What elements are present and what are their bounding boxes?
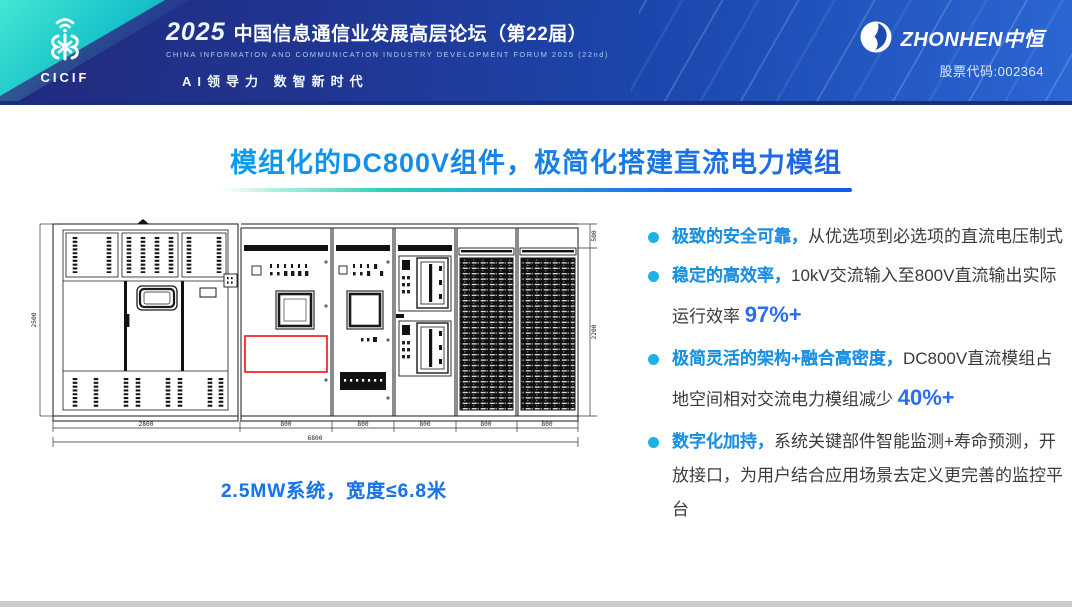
- dim-label-unit-width: 800: [541, 421, 552, 428]
- bullet-item-architecture: 极简灵活的架构+融合高密度，DC800V直流模组占地空间相对交流电力模组减少 4…: [648, 342, 1066, 420]
- vent-slots-bottom: [75, 378, 221, 408]
- stock-code: 股票代码:002364: [859, 61, 1044, 80]
- bullet-lead: 稳定的高效率，: [672, 266, 791, 285]
- forum-title: 中国信息通信业发展高层论坛（第22届）: [234, 19, 588, 46]
- page-title: 模组化的DC800V组件，极简化搭建直流电力模组: [0, 141, 1072, 180]
- dim-label-unit-width: 800: [480, 421, 491, 428]
- cicif-acronym: CICIF: [26, 70, 104, 85]
- dim-label-left-height: 2500: [31, 312, 38, 327]
- vent-slots-top: [75, 237, 219, 273]
- dim-label-unit-width: 800: [280, 421, 291, 428]
- company-name-cn: 中恒: [1003, 29, 1044, 51]
- company-block: ZHONHEN中恒 股票代码:002364: [859, 20, 1044, 80]
- dim-label-main-width: 2800: [139, 421, 154, 428]
- bullet-content: 数字化加持，系统关键部件智能监测+寿命预测，开放接口，为用户结合应用场景去定义更…: [672, 425, 1066, 527]
- rectifier-cabinet-2: [333, 228, 393, 416]
- power-module-cabinet-1: [457, 228, 516, 416]
- breaker-cabinet: [395, 228, 455, 416]
- main-cabinet: [53, 219, 238, 416]
- bullet-content: 稳定的高效率，10kV交流输入至800V直流输出实际运行效率 97%+: [672, 259, 1066, 337]
- dim-label-unit-width: 800: [357, 421, 368, 428]
- forum-tagline: AI领导力 数智新时代: [182, 71, 609, 90]
- rectifier-cabinet-1: [241, 228, 331, 416]
- bullet-lead: 极简灵活的架构+融合高密度，: [672, 349, 903, 368]
- forum-subtitle-en: CHINA INFORMATION AND COMMUNICATION INDU…: [166, 50, 609, 59]
- bullet-dot-icon: [648, 271, 659, 282]
- title-underline: [220, 188, 852, 192]
- bullet-metric: 97%+: [745, 302, 802, 327]
- power-module-cabinet-2: [518, 228, 578, 416]
- cicif-logo: CICIF: [26, 14, 104, 85]
- bullet-content: 极简灵活的架构+融合高密度，DC800V直流模组占地空间相对交流电力模组减少 4…: [672, 342, 1066, 420]
- feature-bullets-column: 极致的安全可靠，从优选项到必选项的直流电压制式 稳定的高效率，10kV交流输入至…: [648, 218, 1066, 532]
- bullet-lead: 极致的安全可靠，: [672, 227, 808, 246]
- bullet-dot-icon: [648, 232, 659, 243]
- dim-label-unit-width: 800: [419, 421, 430, 428]
- bullet-dot-icon: [648, 354, 659, 365]
- forum-title-block: 2025 中国信息通信业发展高层论坛（第22届） CHINA INFORMATI…: [166, 18, 609, 90]
- cabinet-line-drawing: 2500 500 2200 2800 800 800 800 800 800 6…: [30, 218, 620, 453]
- bottom-edge-bar: [0, 601, 1072, 607]
- lifting-lug-icon: [137, 219, 149, 224]
- diagram-column: 2500 500 2200 2800 800 800 800 800 800 6…: [30, 218, 638, 532]
- indicator-lights: [270, 264, 308, 276]
- forum-year: 2025: [166, 18, 226, 47]
- bullet-dot-icon: [648, 437, 659, 448]
- dim-label-top-right: 500: [591, 230, 598, 241]
- bullet-item-safety: 极致的安全可靠，从优选项到必选项的直流电压制式: [648, 220, 1066, 254]
- bullet-item-efficiency: 稳定的高效率，10kV交流输入至800V直流输出实际运行效率 97%+: [648, 259, 1066, 337]
- door-handle: [127, 314, 129, 327]
- presentation-slide: CICIF 2025 中国信息通信业发展高层论坛（第22届） CHINA INF…: [0, 0, 1072, 607]
- diagram-caption: 2.5MW系统，宽度≤6.8米: [30, 476, 638, 503]
- bullet-text: 从优选项到必选项的直流电压制式: [808, 227, 1063, 246]
- dim-label-right-height: 2200: [591, 324, 598, 339]
- highlight-red-box: [245, 336, 327, 372]
- bullet-lead: 数字化加持，: [672, 432, 774, 451]
- cicif-knot-icon: [37, 14, 93, 64]
- cabinet-bases: [53, 416, 578, 421]
- company-name: ZHONHEN中恒: [901, 23, 1044, 52]
- dim-label-total-width: 6800: [308, 435, 323, 442]
- company-name-en: ZHONHEN: [901, 29, 1003, 51]
- main-content: 2500 500 2200 2800 800 800 800 800 800 6…: [0, 218, 1072, 532]
- bullet-metric: 40%+: [898, 385, 955, 410]
- header-banner: CICIF 2025 中国信息通信业发展高层论坛（第22届） CHINA INF…: [0, 0, 1072, 105]
- zhonhen-logo-icon: [859, 20, 893, 54]
- bullet-item-digital: 数字化加持，系统关键部件智能监测+寿命预测，开放接口，为用户结合应用场景去定义更…: [648, 425, 1066, 527]
- bullet-list: 极致的安全可靠，从优选项到必选项的直流电压制式 稳定的高效率，10kV交流输入至…: [648, 220, 1066, 527]
- bullet-content: 极致的安全可靠，从优选项到必选项的直流电压制式: [672, 220, 1063, 254]
